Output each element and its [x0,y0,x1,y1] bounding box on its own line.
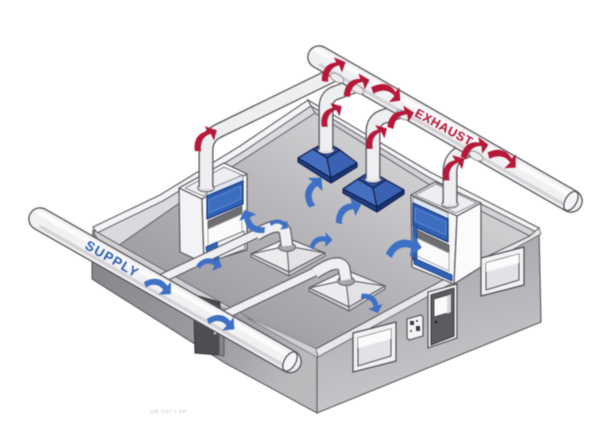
svg-text:ysk max n am: ysk max n am [150,409,187,415]
